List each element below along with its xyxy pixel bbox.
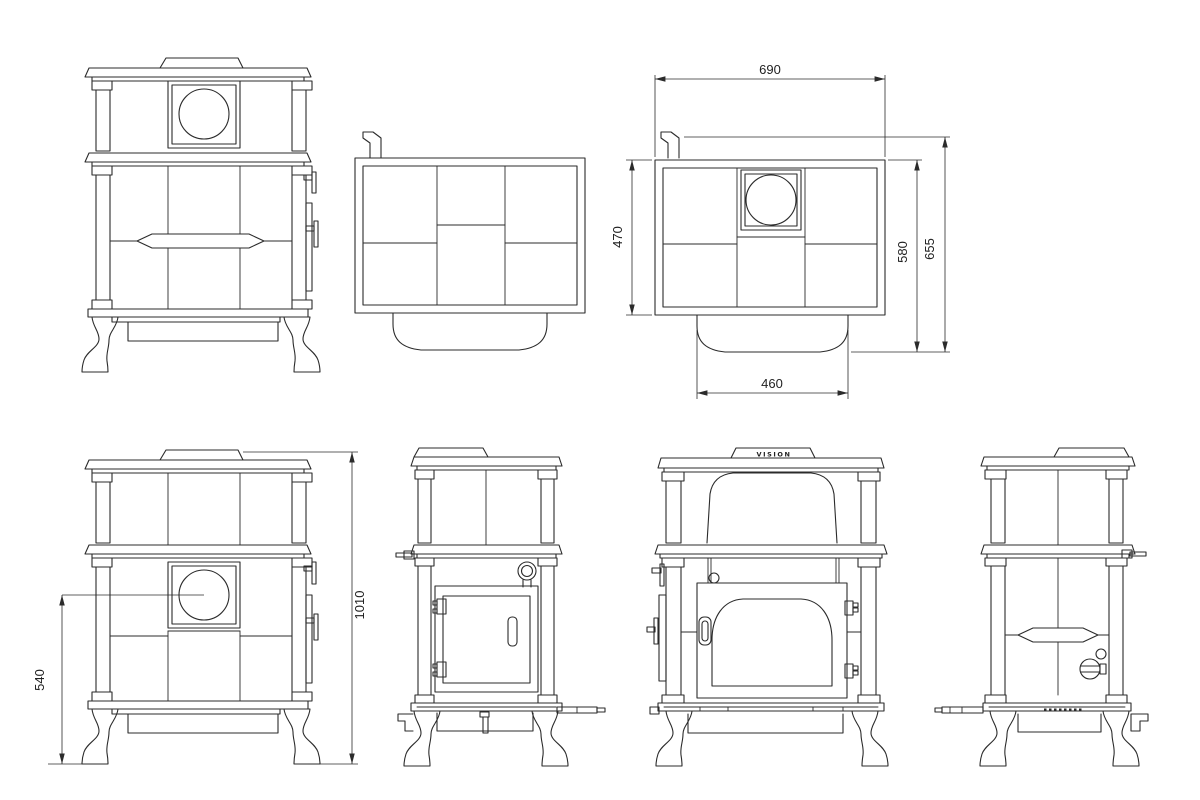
door-edge-plate <box>306 203 312 291</box>
dimension-front-base-width: 460 <box>697 330 848 399</box>
dimension-overall-depth: 655 <box>684 137 950 352</box>
mid-shelf <box>981 545 1135 554</box>
hinge <box>437 662 446 677</box>
corner-bracket <box>398 714 413 731</box>
flue-port-circle <box>746 175 796 225</box>
top-plate <box>981 457 1135 466</box>
leg <box>1103 711 1139 766</box>
plan-outline <box>655 160 885 315</box>
front-apron-plan <box>697 315 848 352</box>
door-window <box>712 599 832 686</box>
brand-text: VISION <box>756 451 791 459</box>
dim-label-front-base-width: 460 <box>761 376 783 391</box>
post <box>96 90 110 151</box>
dim-label-port-height: 540 <box>32 669 47 691</box>
leg <box>284 709 320 764</box>
dim-label-overall-height: 1010 <box>352 591 367 620</box>
ash-door-frame <box>435 586 538 692</box>
side-handle <box>1018 628 1098 642</box>
view-plan-middle <box>355 132 585 350</box>
flue-collar <box>160 450 243 460</box>
side-shelf-bar <box>942 707 983 713</box>
leg <box>82 317 118 372</box>
door-edge-plate <box>659 595 666 681</box>
top-plate <box>85 68 311 77</box>
front-apron-plan <box>393 313 547 350</box>
dim-label-depth-with-front: 580 <box>895 241 910 263</box>
fire-door <box>697 583 847 698</box>
flue-collar <box>160 58 243 68</box>
hinge <box>437 599 446 614</box>
leg <box>82 709 118 764</box>
view-side-elevation-top-left <box>82 58 320 372</box>
leg <box>532 711 568 766</box>
air-control-dial <box>1080 659 1100 679</box>
door-handle-slot <box>508 617 517 646</box>
side-handle <box>137 234 264 248</box>
dimension-top-depth: 470 <box>610 160 652 315</box>
dim-label-top-depth: 470 <box>610 226 625 248</box>
mid-shelf <box>85 153 311 162</box>
view-side-elevation-dimensioned <box>82 450 320 764</box>
top-plate <box>658 458 884 468</box>
corner-bracket <box>1131 714 1148 731</box>
hinge <box>845 601 853 615</box>
stove-technical-drawing: 690 470 580 655 460 <box>0 0 1200 800</box>
technical-drawing-sheet: 690 470 580 655 460 <box>0 0 1200 800</box>
damper-knob <box>518 562 536 580</box>
latch-handle <box>306 618 314 623</box>
plan-outline <box>355 158 585 313</box>
latch-handle <box>304 175 312 180</box>
mid-shelf <box>655 545 887 554</box>
dimension-port-height: 540 <box>32 595 204 764</box>
leg <box>852 711 888 766</box>
base-plate <box>88 701 308 709</box>
lid-handle <box>661 132 679 158</box>
post <box>292 90 306 151</box>
latch-handle <box>306 226 314 231</box>
dimension-overall-height: 1010 <box>243 452 367 764</box>
upper-arch-panel <box>707 473 837 543</box>
latch-knob <box>709 573 719 583</box>
lid-handle <box>363 132 381 158</box>
leg <box>404 711 440 766</box>
top-plate <box>85 460 311 469</box>
leg <box>284 317 320 372</box>
mid-shelf <box>411 545 562 554</box>
leg <box>980 711 1016 766</box>
flue-port-frame <box>741 170 801 230</box>
flue-collar <box>414 448 488 457</box>
air-control-pin <box>1096 649 1106 659</box>
view-front-elevation: VISION <box>647 448 888 766</box>
view-rear-elevation <box>396 448 605 766</box>
flue-port-circle <box>179 89 229 139</box>
dimension-top-width: 690 <box>655 62 885 157</box>
dim-label-top-width: 690 <box>759 62 781 77</box>
hinge <box>845 664 853 678</box>
door-edge-plate <box>306 595 312 683</box>
dim-label-overall-depth: 655 <box>922 238 937 260</box>
mid-shelf <box>85 545 311 554</box>
view-plan-dimensioned <box>655 132 885 352</box>
base-plate <box>88 309 308 317</box>
top-plate <box>411 457 562 466</box>
leg <box>656 711 692 766</box>
view-side-elevation-right <box>935 448 1148 766</box>
flue-collar <box>1054 448 1129 457</box>
